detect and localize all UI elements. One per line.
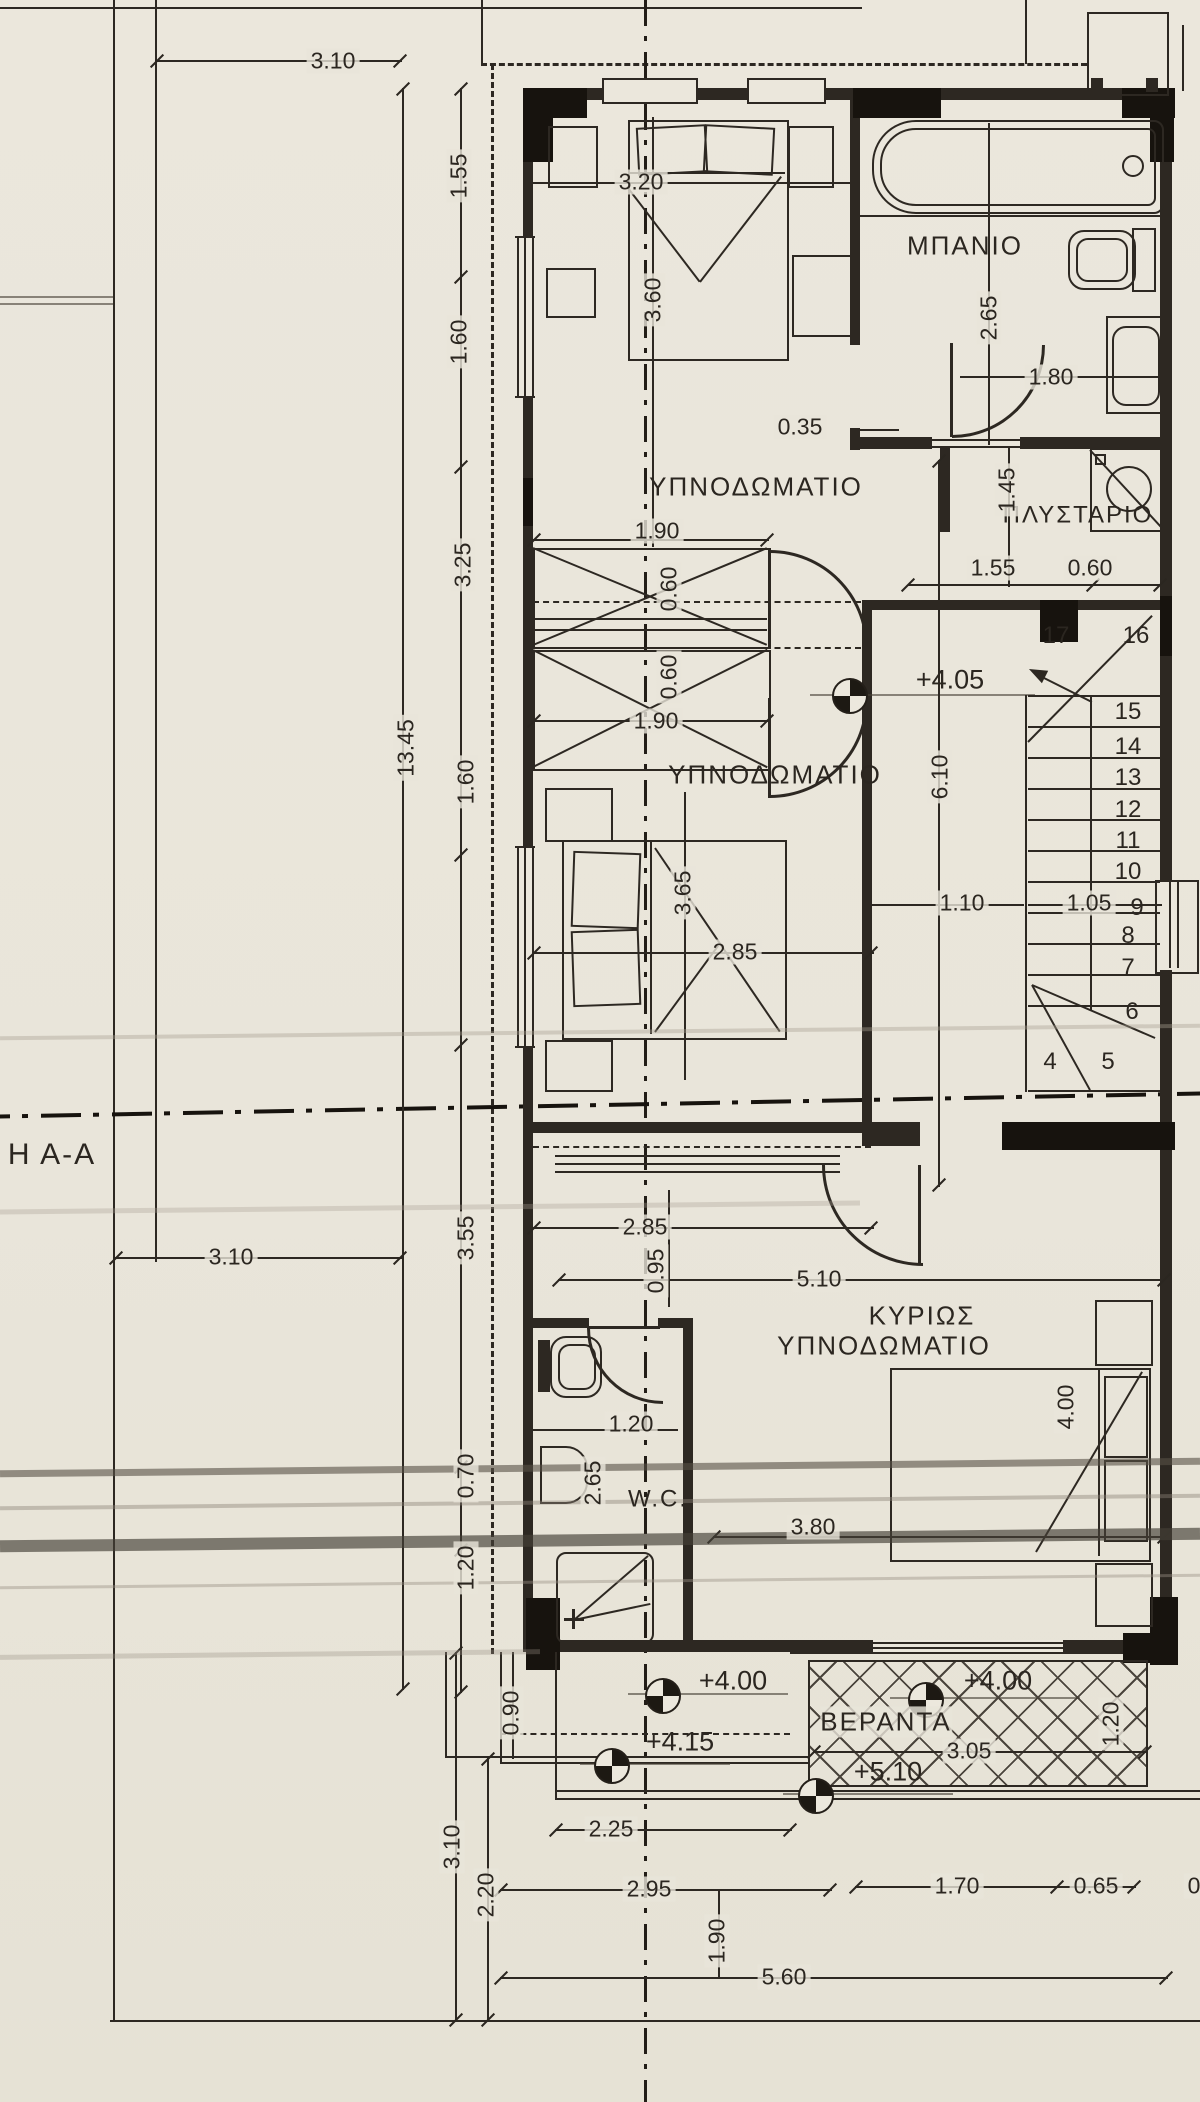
dim-ll-2-20: 2.20 [474, 1869, 499, 1922]
dim-bottom-2-95: 2.95 [623, 1877, 676, 1902]
dim-left-bottom: 3.10 [205, 1245, 258, 1270]
pillow [703, 124, 775, 176]
level-veranda: +4.00 [960, 1667, 1036, 1696]
left-boundary-line-2 [155, 0, 157, 1262]
column [853, 88, 941, 118]
hall-lowwall-b [555, 1163, 840, 1165]
toilet-bowl-inner [1076, 238, 1128, 282]
dim-closet2-width: 1.90 [630, 709, 683, 734]
dim-laundry-width: 1.55 [967, 556, 1020, 581]
terrace-edge [555, 1798, 1200, 1800]
stair-step-11: 11 [1116, 829, 1141, 853]
window-line [873, 1652, 1063, 1654]
window-cap [515, 396, 535, 398]
dim-line [500, 1977, 1168, 1979]
stair-step-5: 5 [1101, 1050, 1114, 1074]
section-label: Η Α-Α [8, 1137, 96, 1173]
terrace-edge [555, 1790, 1200, 1792]
dim-bed2-length: 3.65 [671, 867, 696, 920]
stair-tread [1028, 726, 1160, 728]
wall-bath-laundry-a [855, 437, 932, 449]
window-line [524, 847, 526, 1047]
toilet-tank [1132, 228, 1156, 292]
stair-tread [1028, 695, 1160, 697]
dim-bottom-partial: 0 [1184, 1874, 1200, 1899]
pillow [571, 929, 642, 1007]
veranda-label: ΒΕΡΑΝΤΑ [820, 1706, 952, 1737]
dim-closet1-width: 1.90 [631, 519, 684, 544]
desk [792, 255, 854, 337]
level-veranda-lower: +5.10 [850, 1758, 926, 1787]
eaves-dashed-vertical [491, 64, 494, 1654]
stair-tread [1028, 1005, 1160, 1007]
dim-bedroom2-width: 2.85 [709, 940, 762, 965]
dim-chain-0-70: 0.70 [454, 1450, 479, 1503]
wall-wc-top-b [658, 1318, 693, 1328]
scan-streak [0, 1649, 540, 1660]
bedroom1-door-arc [770, 550, 868, 648]
bed2-headboard [650, 842, 652, 1034]
window-line [1169, 882, 1171, 968]
stair-winder-bottom [1031, 985, 1091, 1091]
dim-ll-3-10: 3.10 [440, 1821, 465, 1874]
dim-line [533, 952, 874, 954]
dim-line [908, 584, 1162, 586]
stair-step-8: 8 [1121, 924, 1134, 948]
main-bedroom-label-1: ΚΥΡΙΩΣ [869, 1300, 976, 1331]
dim-line [855, 429, 899, 431]
top-right-line-a [1025, 0, 1027, 64]
main-door-arc [822, 1165, 923, 1266]
dim-veranda-width: 3.05 [943, 1739, 996, 1764]
hall-dashed [533, 1146, 871, 1148]
stair-step-17: 17 [1043, 624, 1070, 648]
step-side [555, 1652, 557, 1800]
window-line [532, 237, 534, 397]
stair-step-12: 12 [1115, 798, 1142, 822]
dim-bottom-1-90: 1.90 [705, 1915, 730, 1968]
stair-step-10: 10 [1115, 860, 1142, 884]
left-boundary-line [113, 0, 115, 2022]
shower [556, 1552, 654, 1644]
dim-line [684, 792, 686, 1080]
dim-main-inner: 3.80 [787, 1515, 840, 1540]
dim-hall-width: 1.10 [936, 891, 989, 916]
dim-chain-3-25: 3.25 [451, 539, 476, 592]
dim-wc-depth: 2.65 [581, 1457, 606, 1510]
wall-bottom-main-a [790, 1640, 875, 1654]
dim-chain-1-60b: 1.60 [454, 756, 479, 809]
dim-chain-13-45: 13.45 [394, 715, 419, 781]
nightstand [788, 126, 834, 188]
window-cap [515, 846, 535, 848]
stair-bottom-edge [1028, 1090, 1162, 1092]
dim-wall-nib: 0.35 [774, 415, 827, 440]
bedroom2-label: ΥΠΝΟΔΩΜΑΤΙΟ [668, 759, 882, 790]
margin-mark-a [0, 296, 113, 298]
stair-step-7: 7 [1121, 956, 1134, 980]
nightstand [545, 788, 613, 842]
dim-chain-3-55: 3.55 [454, 1212, 479, 1265]
nightstand [1095, 1563, 1153, 1627]
window-cap [515, 1046, 535, 1048]
stair-tread [1028, 943, 1160, 945]
wall-wc-right [683, 1318, 693, 1642]
dim-bottom-0-65: 0.65 [1070, 1874, 1123, 1899]
dim-main-width: 5.10 [793, 1267, 846, 1292]
stair-step-16: 16 [1123, 624, 1150, 648]
dim-chain-1-55: 1.55 [447, 150, 472, 203]
level-exterior: +4.00 [695, 1667, 771, 1696]
window-line [873, 1642, 1063, 1644]
dim-laundry-right: 0.60 [1064, 556, 1117, 581]
bedroom1-label: ΥΠΝΟΔΩΜΑΤΙΟ [649, 471, 863, 502]
dim-bath-depth: 2.65 [977, 292, 1002, 345]
main-bedroom-label-2: ΥΠΝΟΔΩΜΑΤΙΟ [777, 1330, 991, 1361]
dim-chain-1-60a: 1.60 [447, 316, 472, 369]
stair-step-4: 4 [1043, 1050, 1056, 1074]
dim-wc-width: 1.20 [605, 1412, 658, 1437]
nightstand [548, 126, 598, 188]
dim-line-top [157, 60, 402, 62]
bathroom-label: ΜΠΑΝΙΟ [907, 230, 1023, 261]
wall-bedroom2-bottom [523, 1122, 874, 1133]
scan-streak [0, 1200, 860, 1214]
margin-mark-b [0, 303, 113, 305]
window-line [532, 847, 534, 1047]
level-symbol-hall [832, 678, 868, 714]
step-side [445, 1652, 447, 1758]
wall-stair-main-left [862, 1122, 920, 1146]
window-post [1091, 78, 1103, 92]
dim-bed1-length: 3.60 [641, 274, 666, 327]
pillow [571, 851, 642, 929]
dim-line [938, 460, 940, 1187]
veranda-edge [808, 1660, 1148, 1662]
stair-tread [1028, 974, 1160, 976]
shower-rosette [572, 1609, 575, 1629]
hall-lowwall-a [555, 1155, 840, 1157]
bath-sink-basin [1112, 326, 1160, 406]
stair-step-13: 13 [1115, 766, 1142, 790]
eaves-corner-line [481, 0, 483, 64]
window-cap [515, 236, 535, 238]
column [523, 478, 533, 526]
bathtub-inner [880, 128, 1156, 206]
top-window-a [602, 78, 698, 104]
stair-step-14: 14 [1115, 735, 1142, 759]
bath-door-arc [952, 345, 1045, 438]
floor-plan-sheet: Η Α-Α 3.10 13.45 1.55 1.60 3.25 1.60 3.5… [0, 0, 1200, 2102]
dim-bath-width: 1.80 [1025, 365, 1078, 390]
dim-line-left-outer [402, 88, 404, 1690]
wall-laundry-stair [862, 600, 1162, 610]
level-exterior-step: +4.15 [642, 1728, 718, 1757]
dim-line [533, 182, 857, 184]
stair-step-9: 9 [1130, 896, 1143, 920]
top-right-line-b [1182, 25, 1184, 91]
dim-ext-steps: 0.90 [499, 1687, 524, 1740]
hall-lowwall-c [555, 1171, 840, 1173]
stair-arrow [1026, 663, 1048, 684]
window-line [1177, 882, 1179, 968]
dim-stair-length: 6.10 [928, 751, 953, 804]
window-line [517, 237, 519, 397]
dim-hall-lower-width: 2.85 [619, 1215, 672, 1240]
dim-line [988, 123, 990, 445]
level-hall: +4.05 [912, 666, 988, 695]
column [1160, 596, 1172, 656]
nightstand [1095, 1300, 1153, 1366]
dim-laundry-depth: 1.45 [995, 464, 1020, 517]
nightstand [545, 1040, 613, 1092]
laundry-label: ΠΛΥΣΤΑΡΙΟ [1003, 502, 1154, 531]
dim-stair-width: 1.05 [1063, 891, 1116, 916]
bath-tub-edge [860, 215, 1160, 217]
side-table [546, 268, 596, 318]
dim-bottom-1-70: 1.70 [931, 1874, 984, 1899]
dim-chain-1-20: 1.20 [454, 1542, 479, 1595]
column [1002, 1122, 1175, 1150]
dim-hall-lower-depth: 0.95 [644, 1245, 669, 1298]
stair-step-15: 15 [1115, 700, 1142, 724]
section-line-a-a [0, 1091, 1200, 1119]
wall-laundry-left [940, 448, 950, 532]
dim-bed1-width: 3.20 [615, 170, 668, 195]
wc-label: W.C. [628, 1486, 688, 1515]
wc-toilet-tank [538, 1340, 550, 1392]
level-symbol-veranda-lower [798, 1778, 834, 1814]
bottom-boundary-line [110, 2020, 1200, 2022]
wall-wc-top-a [533, 1318, 589, 1328]
dim-closet1-depth: 0.60 [657, 563, 682, 616]
column [1123, 1633, 1177, 1663]
top-window-b [747, 78, 826, 104]
top-boundary-line [0, 7, 862, 9]
stair-stringer [1025, 695, 1027, 1092]
window-post [1146, 78, 1158, 92]
washing-machine-dot [1095, 454, 1106, 465]
window-line [517, 847, 519, 1047]
level-symbol-step [594, 1748, 630, 1784]
level-symbol-exterior [645, 1678, 681, 1714]
dim-bottom-5-60: 5.60 [758, 1965, 811, 1990]
dim-top-width: 3.10 [307, 49, 360, 74]
window-line [524, 237, 526, 397]
wc-toilet-bowl-inner [558, 1344, 596, 1390]
dim-main-bed-length: 4.00 [1054, 1381, 1079, 1434]
stair-step-6: 6 [1125, 1000, 1138, 1024]
dim-closet2-depth: 0.60 [657, 651, 682, 704]
stair-walkline [1040, 675, 1093, 703]
window-line [873, 1647, 1063, 1649]
veranda-edge [1146, 1660, 1148, 1787]
dim-line-left-bottom [115, 1257, 404, 1259]
dim-bottom-2-25: 2.25 [585, 1817, 638, 1842]
eaves-dashed-horizontal [481, 63, 1087, 66]
bath-laundry-window-a [932, 439, 1020, 441]
dim-veranda-depth: 1.20 [1099, 1698, 1124, 1751]
bathtub-drain [1122, 155, 1144, 177]
veranda-edge [808, 1660, 810, 1787]
stair-spine [1090, 695, 1092, 1010]
pillow [1104, 1376, 1148, 1458]
dim-line [533, 1227, 874, 1229]
